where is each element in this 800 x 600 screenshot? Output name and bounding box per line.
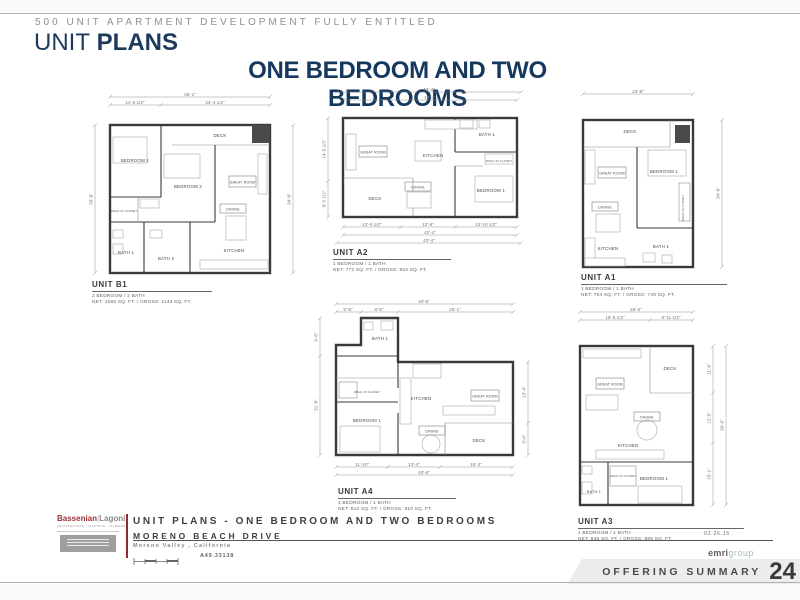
room-label: BEDROOM 1 bbox=[353, 418, 382, 423]
page-title-bold: PLANS bbox=[97, 29, 178, 56]
footer-city: Moreno Valley , California bbox=[133, 543, 231, 549]
room-label: GREAT ROOM bbox=[472, 395, 498, 399]
page-title-light: UNIT bbox=[34, 29, 90, 56]
architect-address-box bbox=[60, 535, 116, 552]
footer-rule bbox=[133, 540, 773, 541]
dimension-label: 8'-0" bbox=[522, 434, 527, 444]
unit-a1-label: UNIT A1 1 BEDROOM / 1 BATH NET: 704 SQ. … bbox=[581, 273, 727, 300]
room-label: DECK bbox=[473, 438, 486, 443]
footer-divider bbox=[126, 514, 128, 558]
room-label: GREAT ROOM bbox=[599, 172, 625, 176]
room-label: DINING bbox=[598, 206, 612, 210]
room-label: DECK bbox=[624, 129, 637, 134]
room-label: BATH 2 bbox=[158, 256, 175, 261]
floor-plan-unit-a2: 43'-4" 42'-4" 14'-5 1/2" 8'-5 1/2" 13'-9… bbox=[315, 86, 555, 253]
room-label: DINING bbox=[226, 208, 240, 212]
room-label: KITCHEN bbox=[618, 443, 639, 448]
unit-name: UNIT A3 bbox=[578, 517, 744, 529]
unit-area: NET: 812 SQ. FT. / GROSS: 910 SQ. FT. bbox=[338, 507, 456, 513]
dimension-label: 43'-4" bbox=[423, 238, 435, 243]
dimension-label: 26'-5" bbox=[630, 307, 642, 312]
unit-name: UNIT A2 bbox=[333, 248, 451, 260]
unit-area: NET: 772 SQ. FT. / GROSS: 834 SQ. FT. bbox=[333, 268, 451, 274]
room-label: DECK bbox=[214, 133, 227, 138]
dimension-label: 16'-5 1/2" bbox=[605, 315, 625, 320]
unit-name: UNIT B1 bbox=[92, 280, 212, 292]
room-label: DINING bbox=[425, 430, 439, 434]
room-label: KITCHEN bbox=[224, 248, 245, 253]
eyebrow-text: 500 UNIT APARTMENT DEVELOPMENT FULLY ENT… bbox=[35, 17, 438, 28]
room-label: BATH 1 bbox=[118, 250, 135, 255]
floor-plan-unit-b1: 36'-1" 11'-6 1/2" 24'-4 1/2" 33'-8" 34'-… bbox=[60, 92, 310, 292]
unit-name: UNIT A1 bbox=[581, 273, 727, 285]
architect-logo: Bassenian|Lagoni ARCHITECTURE · PLANNING… bbox=[57, 514, 123, 552]
dimension-label: 13'-4" bbox=[522, 386, 527, 398]
room-label: BATH 1 bbox=[653, 244, 670, 249]
room-label: KITCHEN bbox=[423, 153, 444, 158]
furniture bbox=[339, 321, 495, 453]
dimension-label: 42'-4" bbox=[424, 95, 436, 100]
room-label: WALK-IN CLOSET bbox=[486, 159, 512, 163]
unit-area: NET: 704 SQ. FT. / GROSS: 749 SQ. FT. bbox=[581, 293, 727, 299]
dimensions: 23'-8" 34'-8" bbox=[581, 89, 724, 269]
walls bbox=[583, 120, 693, 267]
job-number: A49.33138 bbox=[200, 553, 234, 559]
publisher-bold: emri bbox=[708, 548, 728, 558]
dimension-label: 15'-1" bbox=[707, 468, 712, 480]
page-title: UNIT PLANS bbox=[34, 29, 178, 57]
dimension-label: 31'-8" bbox=[314, 399, 319, 411]
unit-a4-label: UNIT A4 1 BEDROOM / 1 BATH NET: 812 SQ. … bbox=[338, 487, 456, 514]
room-label: BEDROOM 2 bbox=[174, 184, 203, 189]
room-label: DECK bbox=[664, 366, 677, 371]
room-label: BEDROOM 1 bbox=[121, 158, 150, 163]
copyright-microtext bbox=[57, 531, 119, 532]
dimension-label: 14'-5 1/2" bbox=[322, 139, 327, 159]
room-label: BEDROOM 1 bbox=[650, 169, 679, 174]
room-labels: GREAT ROOM DECK DINING KITCHEN BATH 1 WA… bbox=[587, 366, 677, 494]
room-label: BEDROOM 1 bbox=[640, 476, 669, 481]
dimension-label: 43'-4" bbox=[423, 87, 435, 92]
dimension-label: 8'-5" bbox=[374, 307, 384, 312]
dimension-label: 11'-6 1/2" bbox=[125, 100, 144, 105]
dimension-label: 39'-0" bbox=[720, 419, 725, 431]
dimension-label: 13'-10 1/2" bbox=[475, 222, 497, 227]
unit-area: NET: 1096 SQ. FT. / GROSS: 1143 SQ. FT. bbox=[92, 300, 212, 306]
dimension-label: 15'-3" bbox=[470, 462, 482, 467]
room-labels: DECK GREAT ROOM BEDROOM 1 DINING KITCHEN… bbox=[592, 129, 685, 251]
dimension-label: 9'-11 1/2" bbox=[661, 315, 680, 320]
room-label: WALK-IN CLOSET bbox=[681, 195, 685, 221]
floor-plan-unit-a1: 23'-8" 34'-8" DECK GREAT ROOM BEDROOM 1 … bbox=[558, 88, 758, 283]
dimension-label: 11'-6" bbox=[707, 363, 712, 375]
room-label: BATH 1 bbox=[372, 336, 389, 341]
dimension-label: 11'-10" bbox=[355, 462, 369, 467]
dimension-label: 34'-8" bbox=[716, 187, 721, 199]
dimension-label: 8'-5 1/2" bbox=[322, 190, 327, 207]
top-margin-strip bbox=[0, 0, 800, 14]
dimension-label: 5'-8" bbox=[314, 332, 319, 342]
room-label: BATH 1 bbox=[479, 132, 496, 137]
dimension-label: 13'-4" bbox=[408, 462, 420, 467]
room-label: WALK-IN CLOSET bbox=[111, 209, 137, 213]
room-label: DINING bbox=[411, 186, 425, 190]
room-label: WALK-IN CLOSET bbox=[610, 474, 636, 478]
unit-b1-label: UNIT B1 2 BEDROOM / 2 BATH NET: 1096 SQ.… bbox=[92, 280, 212, 307]
architect-tagline: ARCHITECTURE · PLANNING · INTERIORS bbox=[57, 524, 123, 528]
room-label: BATH 1 bbox=[587, 490, 601, 494]
floor-plan-unit-a3: 26'-5" 16'-5 1/2" 9'-11 1/2" 11'-6" 12'-… bbox=[556, 300, 800, 520]
dimension-label: 24'-4 1/2" bbox=[205, 100, 225, 105]
room-label: KITCHEN bbox=[411, 396, 432, 401]
bottom-rule bbox=[0, 582, 800, 583]
footer-project-title: UNIT PLANS - ONE BEDROOM AND TWO BEDROOM… bbox=[133, 516, 497, 527]
dimension-label: 40'-5" bbox=[418, 299, 430, 304]
dimension-label: 12'-5" bbox=[707, 412, 712, 424]
dimension-label: 42'-4" bbox=[424, 230, 436, 235]
floor-plan-unit-a4: 40'-5" 5'-8" 8'-5" 26'-1" 5'-8" 31'-8" 1… bbox=[303, 298, 553, 488]
room-label: GREAT ROOM bbox=[597, 383, 623, 387]
room-label: WALK-IN CLOSET bbox=[354, 390, 380, 394]
publisher-logo: emrigroup bbox=[692, 543, 770, 561]
offering-summary-slide: { "page": { "eyebrow": "500 UNIT APARTME… bbox=[0, 0, 800, 600]
bottom-margin-strip bbox=[0, 584, 800, 600]
dimension-label: 40'-5" bbox=[418, 470, 430, 475]
room-label: KITCHEN bbox=[598, 246, 619, 251]
dimension-label: 23'-8" bbox=[632, 89, 644, 94]
room-label: GREAT ROOM bbox=[360, 151, 386, 155]
brand-right: Lagoni bbox=[99, 514, 125, 523]
architect-wordmark: Bassenian|Lagoni bbox=[57, 514, 123, 523]
scale-bar bbox=[133, 552, 179, 570]
dimension-label: 33'-8" bbox=[89, 193, 94, 205]
dimension-label: 34'-8" bbox=[287, 193, 292, 205]
date-stamp: 03.26.15 bbox=[600, 531, 730, 537]
dimension-label: 5'-8" bbox=[343, 307, 353, 312]
publisher-light: group bbox=[728, 548, 754, 558]
room-label: BEDROOM 1 bbox=[477, 188, 506, 193]
dimension-label: 26'-1" bbox=[449, 307, 461, 312]
banner-label: OFFERING SUMMARY bbox=[602, 566, 761, 578]
room-label: DECK bbox=[369, 196, 382, 201]
unit-a2-label: UNIT A2 1 BEDROOM / 1 BATH NET: 772 SQ. … bbox=[333, 248, 451, 275]
room-label: DINING bbox=[640, 416, 654, 420]
brand-left: Bassenian bbox=[57, 514, 97, 523]
dimension-label: 36'-1" bbox=[184, 92, 196, 97]
room-label: GREAT ROOM bbox=[230, 181, 256, 185]
dimension-label: 13'-9 1/2" bbox=[362, 222, 382, 227]
dimension-label: 12'-8" bbox=[422, 222, 434, 227]
unit-name: UNIT A4 bbox=[338, 487, 456, 499]
